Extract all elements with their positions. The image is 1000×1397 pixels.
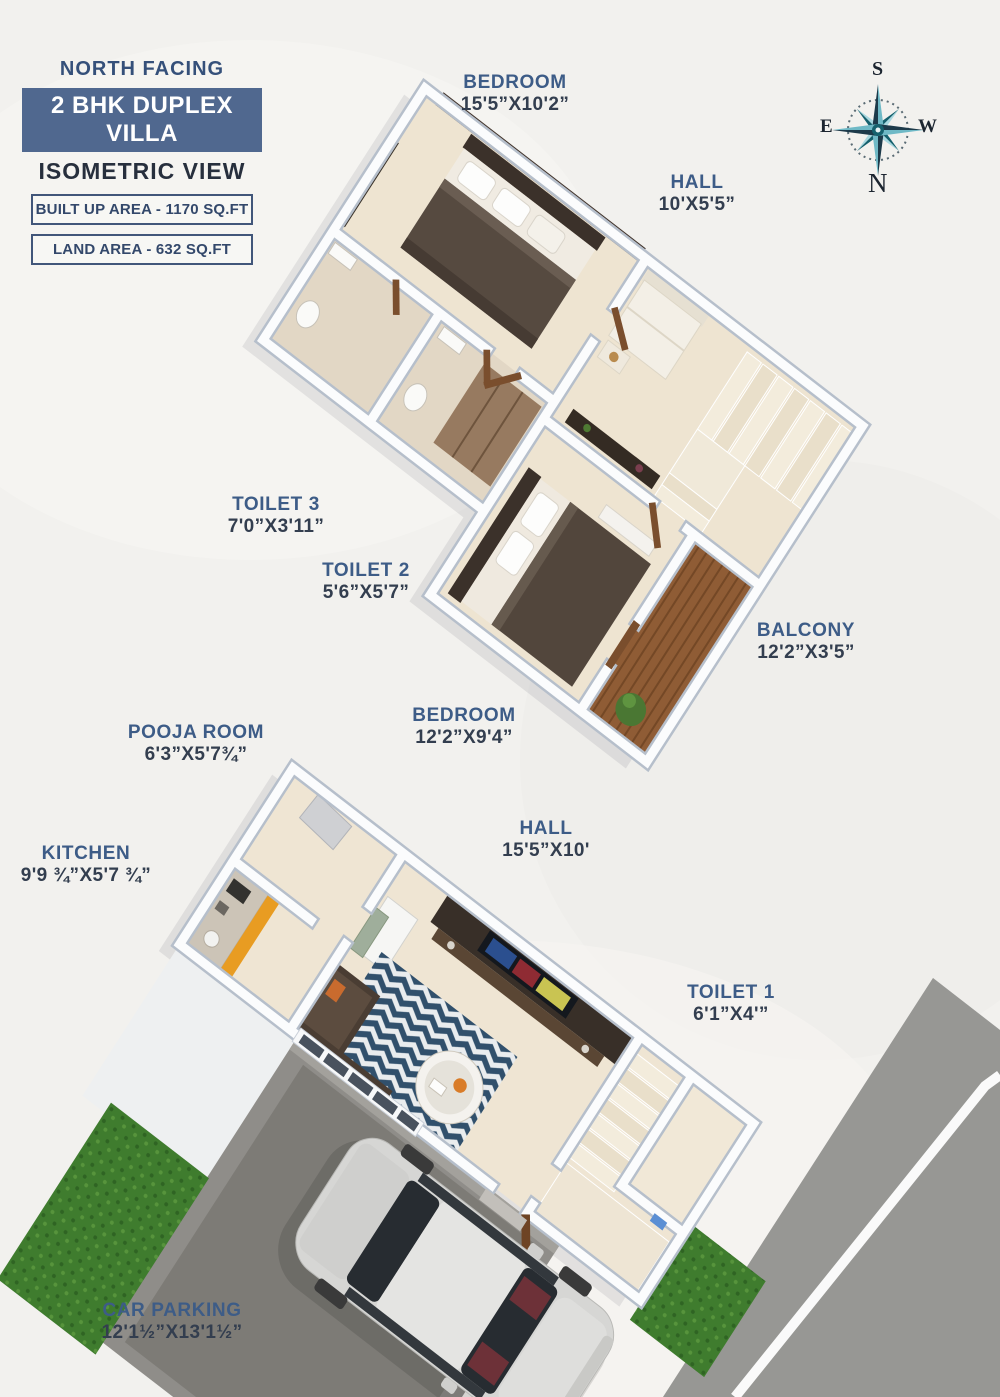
bhk-badge: 2 BHK DUPLEX VILLA [22, 88, 262, 152]
compass-west-label: W [918, 116, 937, 138]
label-kitchen: KITCHEN 9'9 ¾”X5'7 ¾” [21, 843, 151, 887]
label-pooja-room: POOJA ROOM 6'3”X5'7¾” [128, 722, 264, 766]
floorplan-poster: NORTH FACING 2 BHK DUPLEX VILLA ISOMETRI… [0, 0, 1000, 1397]
compass-north-label: N [868, 168, 888, 199]
title-block: NORTH FACING 2 BHK DUPLEX VILLA ISOMETRI… [22, 58, 262, 265]
label-balcony: BALCONY 12'2”X3'5” [757, 620, 855, 664]
compass-south-label: S [872, 58, 883, 81]
label-toilet3: TOILET 3 7'0”X3'11” [228, 494, 325, 538]
facing-title: NORTH FACING [22, 58, 262, 81]
view-title: ISOMETRIC VIEW [22, 158, 262, 185]
label-bedroom-first: BEDROOM 15'5”X10'2” [461, 72, 570, 116]
label-hall-first: HALL 10'X5'5” [659, 172, 736, 216]
land-area-box: LAND AREA - 632 SQ.FT [31, 234, 253, 265]
built-up-area-box: BUILT UP AREA - 1170 SQ.FT [31, 194, 253, 225]
label-bedroom-second: BEDROOM 12'2”X9'4” [412, 705, 515, 749]
label-hall-ground: HALL 15'5”X10' [502, 818, 590, 862]
label-car-parking: CAR PARKING 12'1½”X13'1½” [101, 1300, 242, 1344]
compass-east-label: E [820, 116, 833, 138]
label-toilet2: TOILET 2 5'6”X5'7” [322, 560, 410, 604]
label-toilet1: TOILET 1 6'1”X4'” [687, 982, 775, 1026]
compass-icon: S E W N [806, 56, 950, 204]
